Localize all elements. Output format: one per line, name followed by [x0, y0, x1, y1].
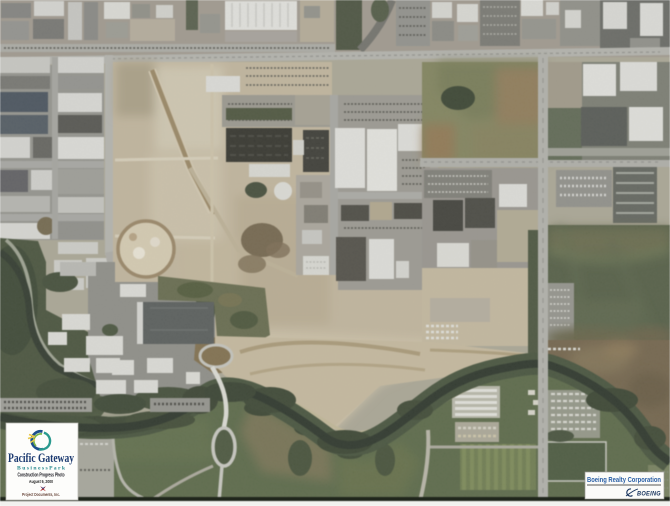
svg-text:August 9, 2000: August 9, 2000: [29, 479, 53, 484]
svg-text:BOEING: BOEING: [637, 492, 661, 498]
svg-text:Boeing Realty Corporation: Boeing Realty Corporation: [587, 475, 661, 484]
svg-text:Project Documents, Inc.: Project Documents, Inc.: [22, 492, 60, 498]
svg-text:B u s i n e s s P a r k: B u s i n e s s P a r k: [17, 467, 65, 472]
svg-text:Construction Progress Photo: Construction Progress Photo: [18, 473, 65, 479]
svg-text:Pacific Gateway: Pacific Gateway: [8, 451, 75, 465]
